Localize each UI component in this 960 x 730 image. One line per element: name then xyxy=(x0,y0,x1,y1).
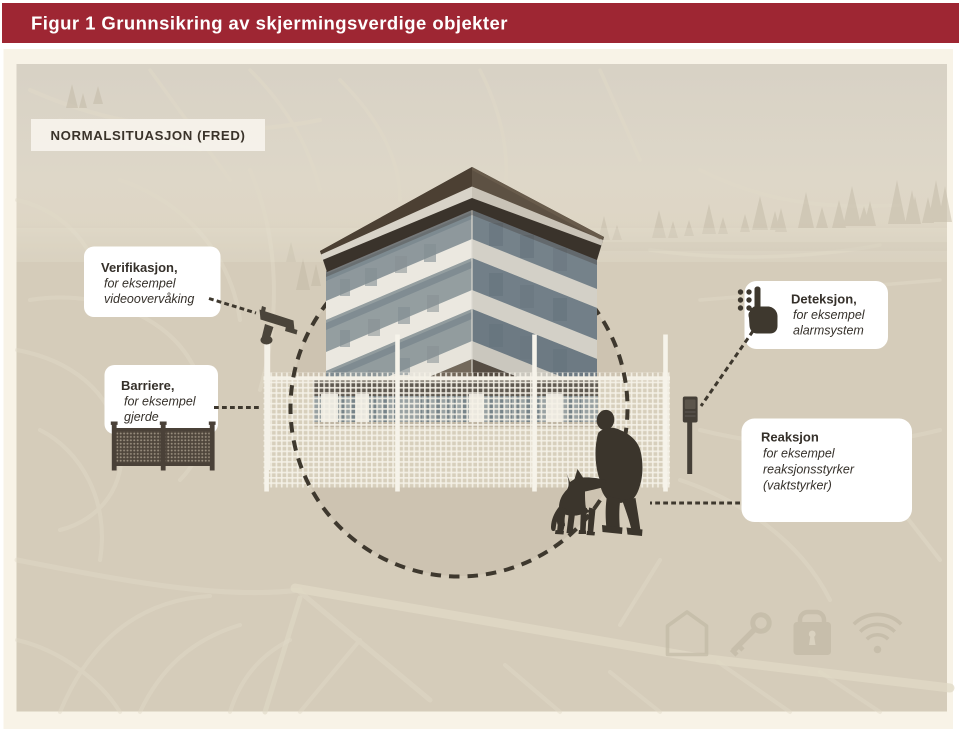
svg-text:for eksempel: for eksempel xyxy=(104,277,177,291)
svg-text:Verifikasjon,: Verifikasjon, xyxy=(101,260,178,275)
svg-text:Reaksjon: Reaksjon xyxy=(761,430,819,445)
svg-text:NORMALSITUASJON (FRED): NORMALSITUASJON (FRED) xyxy=(51,128,246,143)
svg-text:Barriere,: Barriere, xyxy=(121,378,174,393)
svg-text:for eksempel: for eksempel xyxy=(763,447,836,461)
svg-text:for eksempel: for eksempel xyxy=(124,395,197,409)
svg-text:reaksjonsstyrker: reaksjonsstyrker xyxy=(763,463,855,477)
svg-text:Figur 1 Grunnsikring av skjerm: Figur 1 Grunnsikring av skjermingsverdig… xyxy=(31,13,508,34)
svg-text:Deteksjon,: Deteksjon, xyxy=(791,292,857,307)
svg-text:videoovervåking: videoovervåking xyxy=(104,292,194,306)
svg-text:for eksempel: for eksempel xyxy=(793,308,866,322)
svg-text:alarmsystem: alarmsystem xyxy=(793,324,864,338)
svg-text:gjerde: gjerde xyxy=(124,410,159,424)
svg-text:(vaktstyrker): (vaktstyrker) xyxy=(763,479,832,493)
